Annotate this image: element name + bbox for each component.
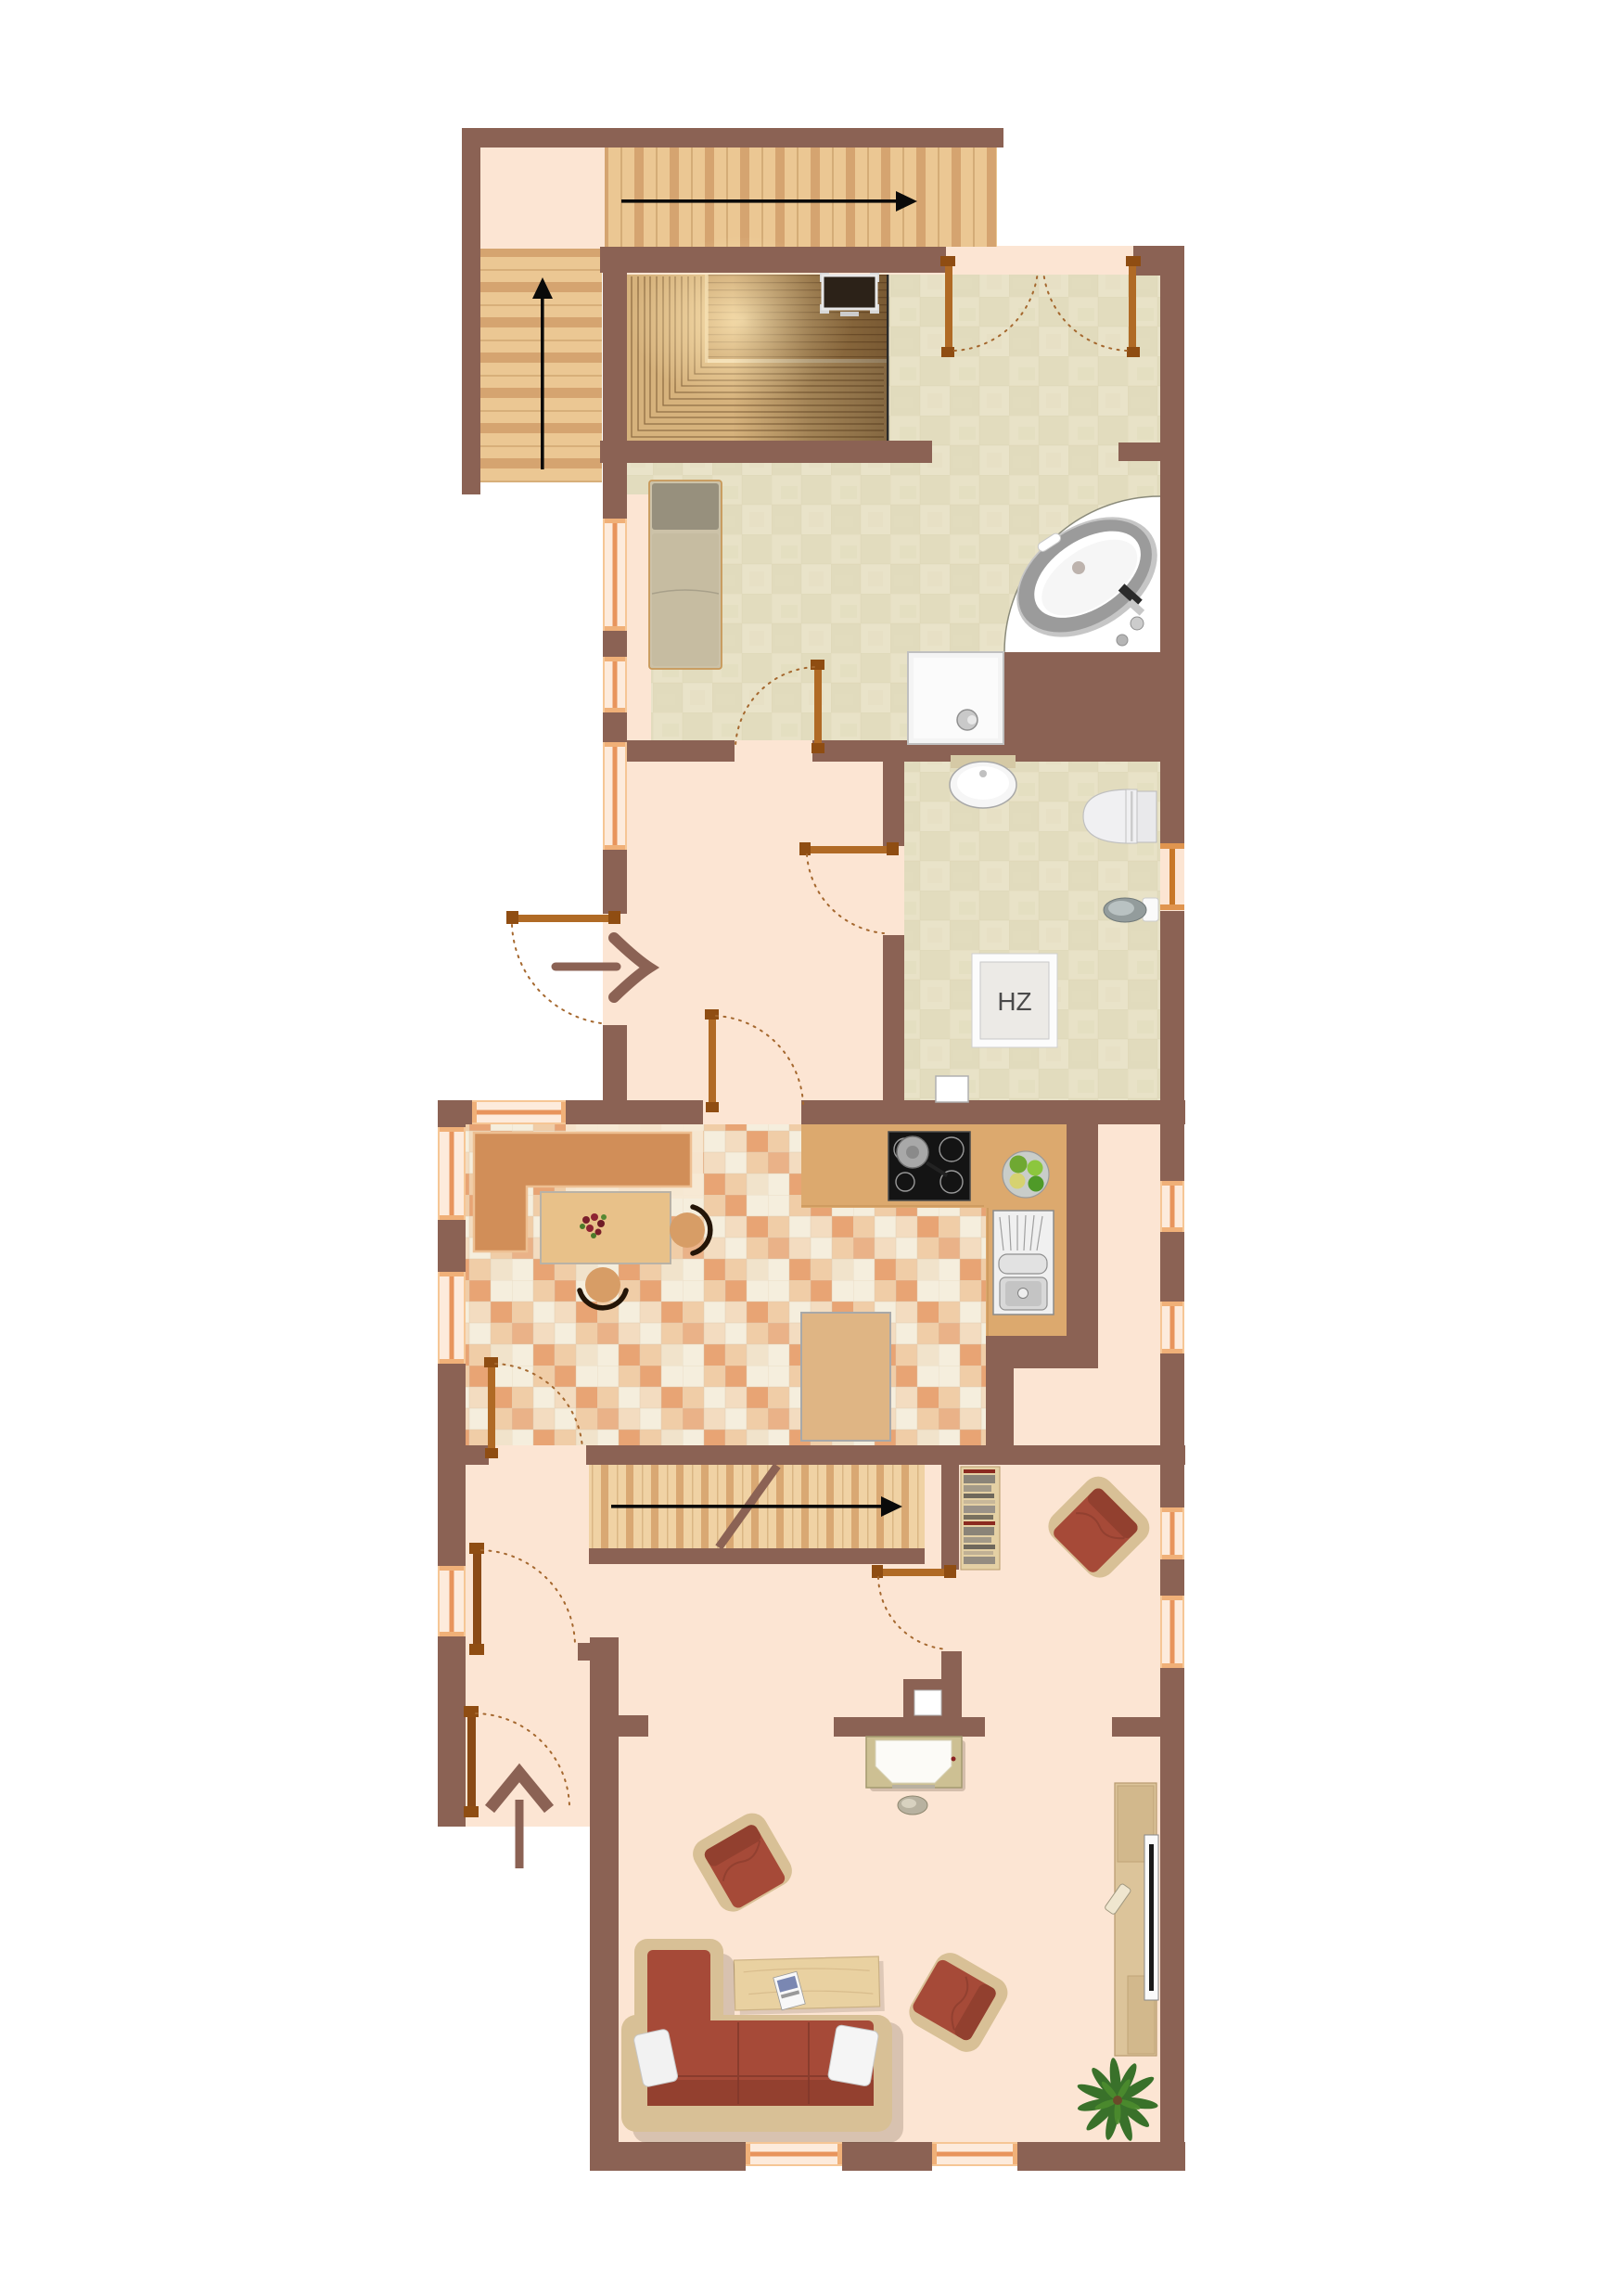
- svg-text:HZ: HZ: [997, 987, 1031, 1016]
